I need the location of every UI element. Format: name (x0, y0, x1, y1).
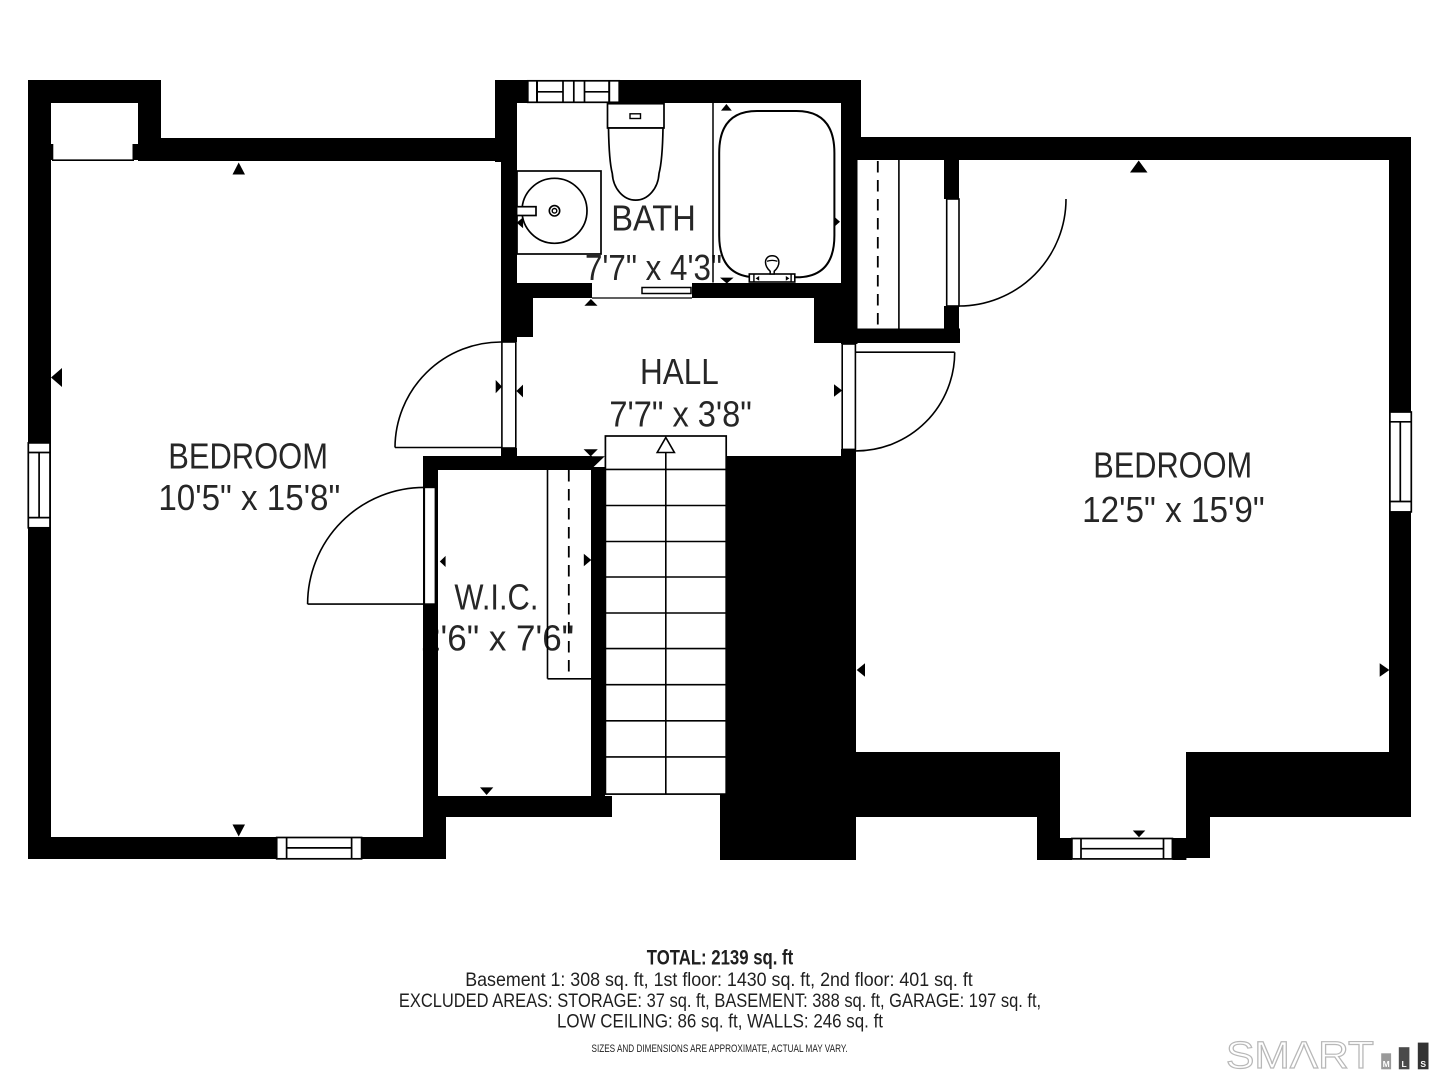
svg-text:2'6" x 7'6": 2'6" x 7'6" (421, 618, 574, 659)
svg-text:Basement 1: 308 sq. ft, 1st fl: Basement 1: 308 sq. ft, 1st floor: 1430 … (465, 969, 973, 991)
svg-text:BATH: BATH (611, 198, 696, 239)
svg-text:L: L (1401, 1059, 1406, 1069)
svg-text:BEDROOM: BEDROOM (168, 436, 328, 477)
svg-text:W.I.C.: W.I.C. (454, 576, 538, 617)
svg-text:12'5" x 15'9": 12'5" x 15'9" (1082, 489, 1265, 530)
svg-text:7'7" x 4'3": 7'7" x 4'3" (585, 247, 722, 288)
svg-text:M: M (1383, 1059, 1390, 1069)
svg-text:TOTAL: 2139 sq. ft: TOTAL: 2139 sq. ft (647, 946, 793, 969)
svg-text:EXCLUDED AREAS: STORAGE: 37 sq: EXCLUDED AREAS: STORAGE: 37 sq. ft, BASE… (399, 990, 1041, 1012)
svg-text:SIZES AND DIMENSIONS ARE APPRO: SIZES AND DIMENSIONS ARE APPROXIMATE, AC… (592, 1043, 848, 1055)
svg-text:LOW CEILING: 86 sq. ft, WALLS:: LOW CEILING: 86 sq. ft, WALLS: 246 sq. f… (557, 1011, 883, 1033)
svg-text:S: S (1420, 1059, 1426, 1069)
svg-text:7'7" x 3'8": 7'7" x 3'8" (609, 393, 752, 434)
svg-text:10'5" x 15'8": 10'5" x 15'8" (158, 477, 340, 518)
svg-text:HALL: HALL (640, 351, 719, 392)
svg-text:BEDROOM: BEDROOM (1093, 444, 1252, 485)
svg-text:SMΛRT: SMΛRT (1226, 1035, 1374, 1077)
